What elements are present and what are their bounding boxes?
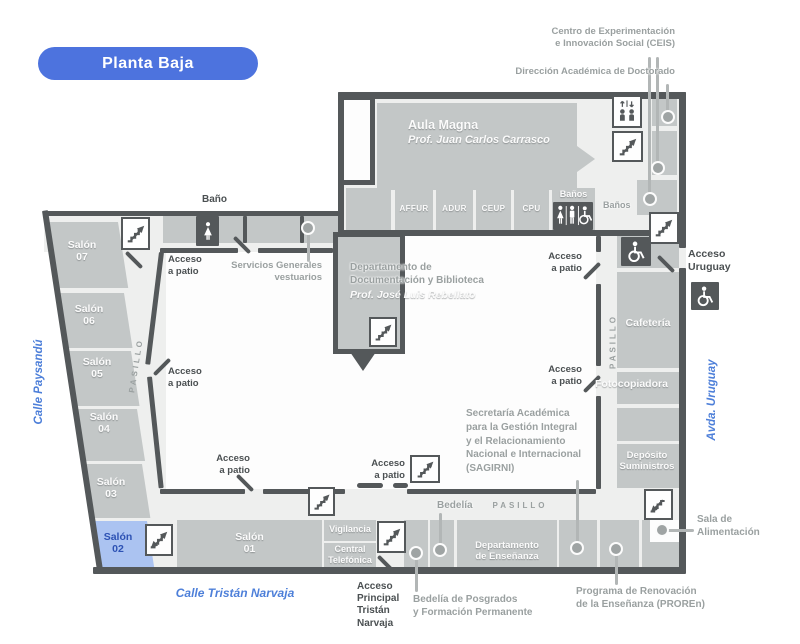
wall-east-upper xyxy=(679,92,686,248)
label-salon-07: Salón 07 xyxy=(56,239,108,264)
label-aula-magna-professor: Prof. Juan Carlos Carrasco xyxy=(408,134,550,147)
label-proren: Programa de Renovación de la Enseñanza (… xyxy=(576,585,705,611)
aula-magna-pointer xyxy=(577,146,595,172)
label-acceso-patio-w: Acceso a patio xyxy=(168,366,202,390)
leader-dot xyxy=(411,548,421,558)
restroom-women-icon xyxy=(196,216,219,246)
room-gremios-filler xyxy=(346,188,391,230)
label-adur: ADUR xyxy=(436,204,473,213)
stairs-up-icon xyxy=(308,487,335,516)
wheelchair-accessible-icon xyxy=(621,237,651,266)
floor-selector-button[interactable]: Planta Baja xyxy=(38,47,258,80)
label-fotocopiadora: Fotocopiadora xyxy=(595,378,668,390)
dashed-opening xyxy=(393,483,408,488)
label-bedelia-posgrados: Bedelía de Posgrados y Formación Permane… xyxy=(413,593,532,619)
label-bano: Baño xyxy=(192,194,237,207)
label-acceso-uruguay: Acceso Uruguay xyxy=(688,248,731,274)
wall-top-block-south xyxy=(338,230,686,236)
label-calle-tristan-narvaja: Calle Tristán Narvaja xyxy=(155,586,315,600)
label-salon-03: Salón 03 xyxy=(85,476,137,501)
leader-line-posgrados xyxy=(415,556,418,592)
wall-patio-south-c xyxy=(407,489,596,494)
label-calle-paysandu: Calle Paysandú xyxy=(33,332,45,432)
label-avda-uruguay: Avda. Uruguay xyxy=(706,354,718,446)
documentacion-pointer xyxy=(350,352,376,371)
label-deposito: Depósito Suministros xyxy=(615,450,679,472)
wall-segment xyxy=(243,216,247,243)
wall-top-left-wing xyxy=(44,211,344,216)
label-documentacion-professor: Prof. José Luis Rebellato xyxy=(350,289,475,301)
label-acceso-patio-sw: Acceso a patio xyxy=(198,453,250,477)
label-pasillo-bottom: PASILLO xyxy=(487,501,553,510)
leader-line-proren xyxy=(615,552,618,585)
label-acceso-patio-ne: Acceso a patio xyxy=(536,251,582,275)
wheelchair-accessible-icon xyxy=(691,282,719,310)
stairs-up-icon xyxy=(649,212,679,244)
label-cpu: CPU xyxy=(514,204,549,213)
stairs-down-icon xyxy=(644,489,673,520)
label-acceso-patio-nw: Acceso a patio xyxy=(168,254,202,278)
leader-dot xyxy=(435,545,445,555)
room-vestuarios-band xyxy=(163,216,340,243)
leader-dot xyxy=(657,525,667,535)
elevator-icon xyxy=(612,95,642,128)
wall-patio-south-a xyxy=(160,489,245,494)
label-aula-magna: Aula Magna xyxy=(408,118,478,133)
leader-dot xyxy=(645,194,655,204)
leader-dot xyxy=(611,544,621,554)
label-banos-right: Baños xyxy=(603,200,631,212)
restroom-mixed-accessible-icon xyxy=(553,202,593,230)
wall-patio-north-a xyxy=(160,248,238,253)
leader-dot xyxy=(303,223,313,233)
leader-line-bedelia xyxy=(439,513,442,546)
label-salon-02: Salón 02 xyxy=(92,531,144,556)
label-servicios-generales: Servicios Generales vestuarios xyxy=(198,260,322,285)
label-sala-alimentacion: Sala de Alimentación xyxy=(697,513,760,539)
wall-east-lower xyxy=(679,268,686,570)
stairs-up-icon xyxy=(369,317,397,347)
label-doctorado: Dirección Académica de Doctorado xyxy=(470,66,675,78)
label-departamento-ensenanza: Departamento de Enseñanza xyxy=(459,540,555,562)
label-sagirni: Secretaría Académica para la Gestión Int… xyxy=(466,407,581,476)
floor-plan-canvas: Salón 07 Salón 06 Salón 05 Salón 04 Saló… xyxy=(0,0,800,644)
leader-line-doctorado xyxy=(666,84,669,112)
label-salon-05: Salón 05 xyxy=(71,356,123,381)
stairs-up-icon xyxy=(121,217,150,250)
stairs-both-icon xyxy=(145,524,173,556)
label-acceso-patio-e: Acceso a patio xyxy=(536,364,582,388)
label-pasillo-right: PASILLO xyxy=(609,309,618,375)
room-top-right-3 xyxy=(637,180,677,215)
wall-patio-north-b xyxy=(258,248,333,253)
room-bedelia xyxy=(430,520,454,567)
stairs-up-icon xyxy=(377,521,406,553)
label-acceso-principal: Acceso Principal Tristán Narvaja xyxy=(357,581,399,630)
label-bedelia: Bedelía xyxy=(437,499,473,512)
leader-line-sala-alimentacion xyxy=(666,529,694,532)
leader-line-sagirni xyxy=(576,480,579,544)
stairwell-shaft xyxy=(339,95,375,185)
leader-dot xyxy=(663,112,673,122)
label-ceup: CEUP xyxy=(476,204,511,213)
leader-dot xyxy=(653,163,663,173)
stairs-up-icon xyxy=(612,131,643,162)
label-vigilancia: Vigilancia xyxy=(324,524,376,535)
leader-dot xyxy=(572,543,582,553)
dashed-opening xyxy=(357,483,383,488)
wall-patio-east-b xyxy=(596,284,601,366)
label-cafeteria: Cafetería xyxy=(617,317,679,329)
room-proren xyxy=(600,520,639,567)
room-right-unlabeled xyxy=(617,408,679,441)
label-banos-top: Baños xyxy=(552,189,595,200)
label-ceis: Centro de Experimentación e Innovación S… xyxy=(470,26,675,51)
wall-patio-east-c xyxy=(596,396,601,489)
label-affur: AFFUR xyxy=(395,204,433,213)
label-acceso-patio-s: Acceso a patio xyxy=(363,458,405,482)
label-documentacion: Departamento de Documentación y Bibliote… xyxy=(350,261,484,287)
wall-patio-east-a xyxy=(596,236,601,252)
leader-line-servicios xyxy=(307,232,310,262)
label-salon-04: Salón 04 xyxy=(78,411,130,436)
label-salon-06: Salón 06 xyxy=(63,303,115,328)
label-central-telefonica: Central Telefónica xyxy=(324,544,376,565)
stairs-up-icon xyxy=(410,455,440,483)
label-salon-01: Salón 01 xyxy=(222,531,277,556)
